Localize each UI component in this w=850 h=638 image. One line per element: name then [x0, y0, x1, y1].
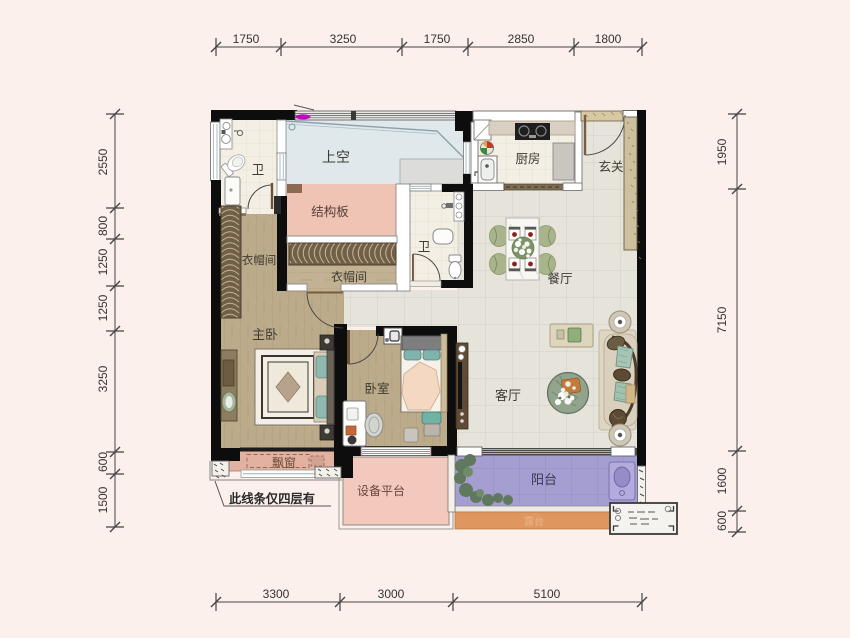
svg-text:卫: 卫	[252, 163, 265, 177]
svg-text:1950: 1950	[715, 138, 729, 165]
svg-text:结构板: 结构板	[311, 204, 349, 219]
svg-text:露台: 露台	[524, 515, 544, 528]
svg-text:卫: 卫	[418, 240, 431, 254]
svg-text:1250: 1250	[96, 248, 110, 275]
svg-text:2550: 2550	[96, 148, 110, 175]
svg-text:800: 800	[96, 216, 110, 236]
svg-text:此线条仅四层有: 此线条仅四层有	[229, 491, 315, 506]
svg-text:5100: 5100	[534, 587, 561, 601]
svg-text:600: 600	[715, 511, 729, 531]
svg-text:3250: 3250	[330, 32, 357, 46]
svg-text:衣帽间: 衣帽间	[331, 269, 367, 284]
svg-text:2850: 2850	[508, 32, 535, 46]
svg-text:1800: 1800	[595, 32, 622, 46]
svg-text:7150: 7150	[715, 306, 729, 333]
svg-text:3000: 3000	[378, 587, 405, 601]
svg-text:设备平台: 设备平台	[357, 483, 405, 498]
svg-text:3300: 3300	[263, 587, 290, 601]
svg-text:1250: 1250	[96, 294, 110, 321]
svg-text:客厅: 客厅	[495, 388, 521, 403]
svg-text:餐厅: 餐厅	[547, 271, 572, 286]
svg-text:厨房: 厨房	[515, 151, 540, 166]
svg-text:1600: 1600	[715, 467, 729, 494]
svg-text:1500: 1500	[96, 486, 110, 513]
svg-text:衣帽间: 衣帽间	[242, 253, 277, 267]
svg-text:阳台: 阳台	[531, 472, 557, 487]
svg-text:1750: 1750	[424, 32, 451, 46]
svg-text:飘窗: 飘窗	[272, 456, 296, 470]
svg-text:主卧: 主卧	[252, 327, 278, 342]
svg-text:上空: 上空	[322, 149, 350, 165]
svg-text:600: 600	[96, 452, 110, 472]
svg-text:卧室: 卧室	[364, 381, 389, 396]
svg-text:玄关: 玄关	[598, 159, 623, 174]
svg-text:3250: 3250	[96, 365, 110, 392]
svg-text:1750: 1750	[233, 32, 260, 46]
